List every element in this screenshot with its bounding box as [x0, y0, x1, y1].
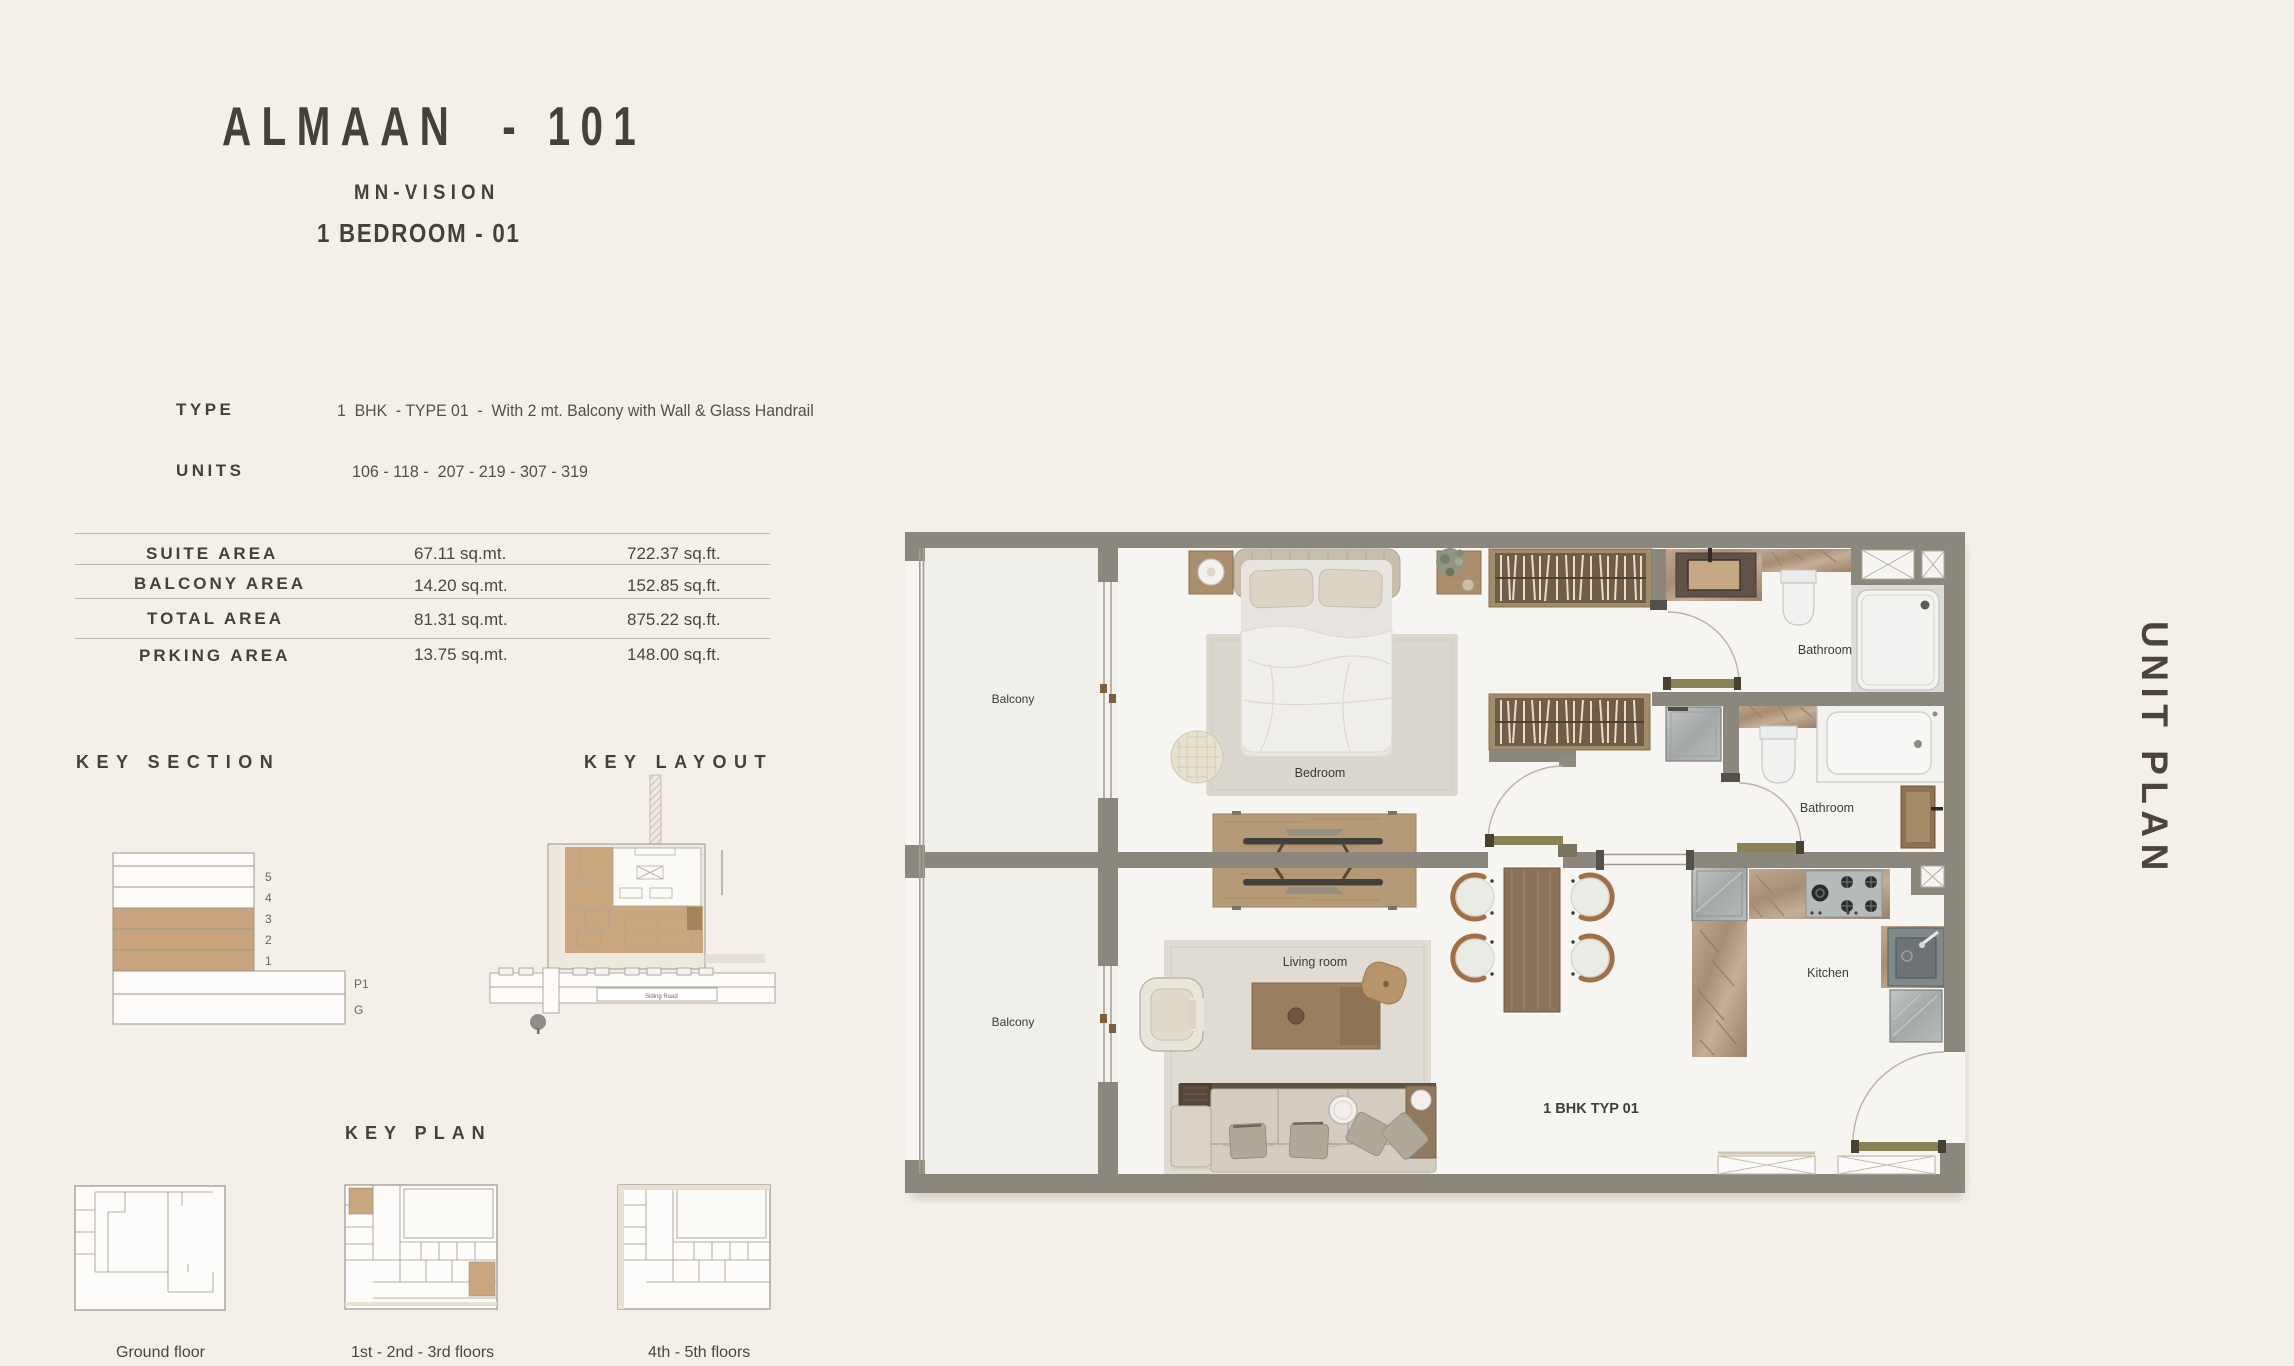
svg-text:2: 2: [265, 933, 272, 947]
svg-text:3: 3: [265, 912, 272, 926]
svg-text:Balcony: Balcony: [992, 692, 1035, 706]
svg-text:4: 4: [265, 891, 272, 905]
svg-text:1 BHK TYP 01: 1 BHK TYP 01: [1543, 1101, 1639, 1117]
svg-text:Kitchen: Kitchen: [1807, 966, 1849, 980]
svg-text:Bathroom: Bathroom: [1800, 801, 1854, 815]
svg-text:5: 5: [265, 870, 272, 884]
svg-text:Bathroom: Bathroom: [1798, 643, 1852, 657]
svg-text:Siding Road: Siding Road: [645, 994, 678, 1000]
svg-text:1: 1: [265, 954, 272, 968]
svg-text:G: G: [354, 1003, 363, 1017]
svg-text:Living room: Living room: [1283, 955, 1348, 969]
svg-text:Balcony: Balcony: [992, 1015, 1035, 1029]
svg-text:Bedroom: Bedroom: [1295, 766, 1346, 780]
svg-text:P1: P1: [354, 977, 369, 991]
